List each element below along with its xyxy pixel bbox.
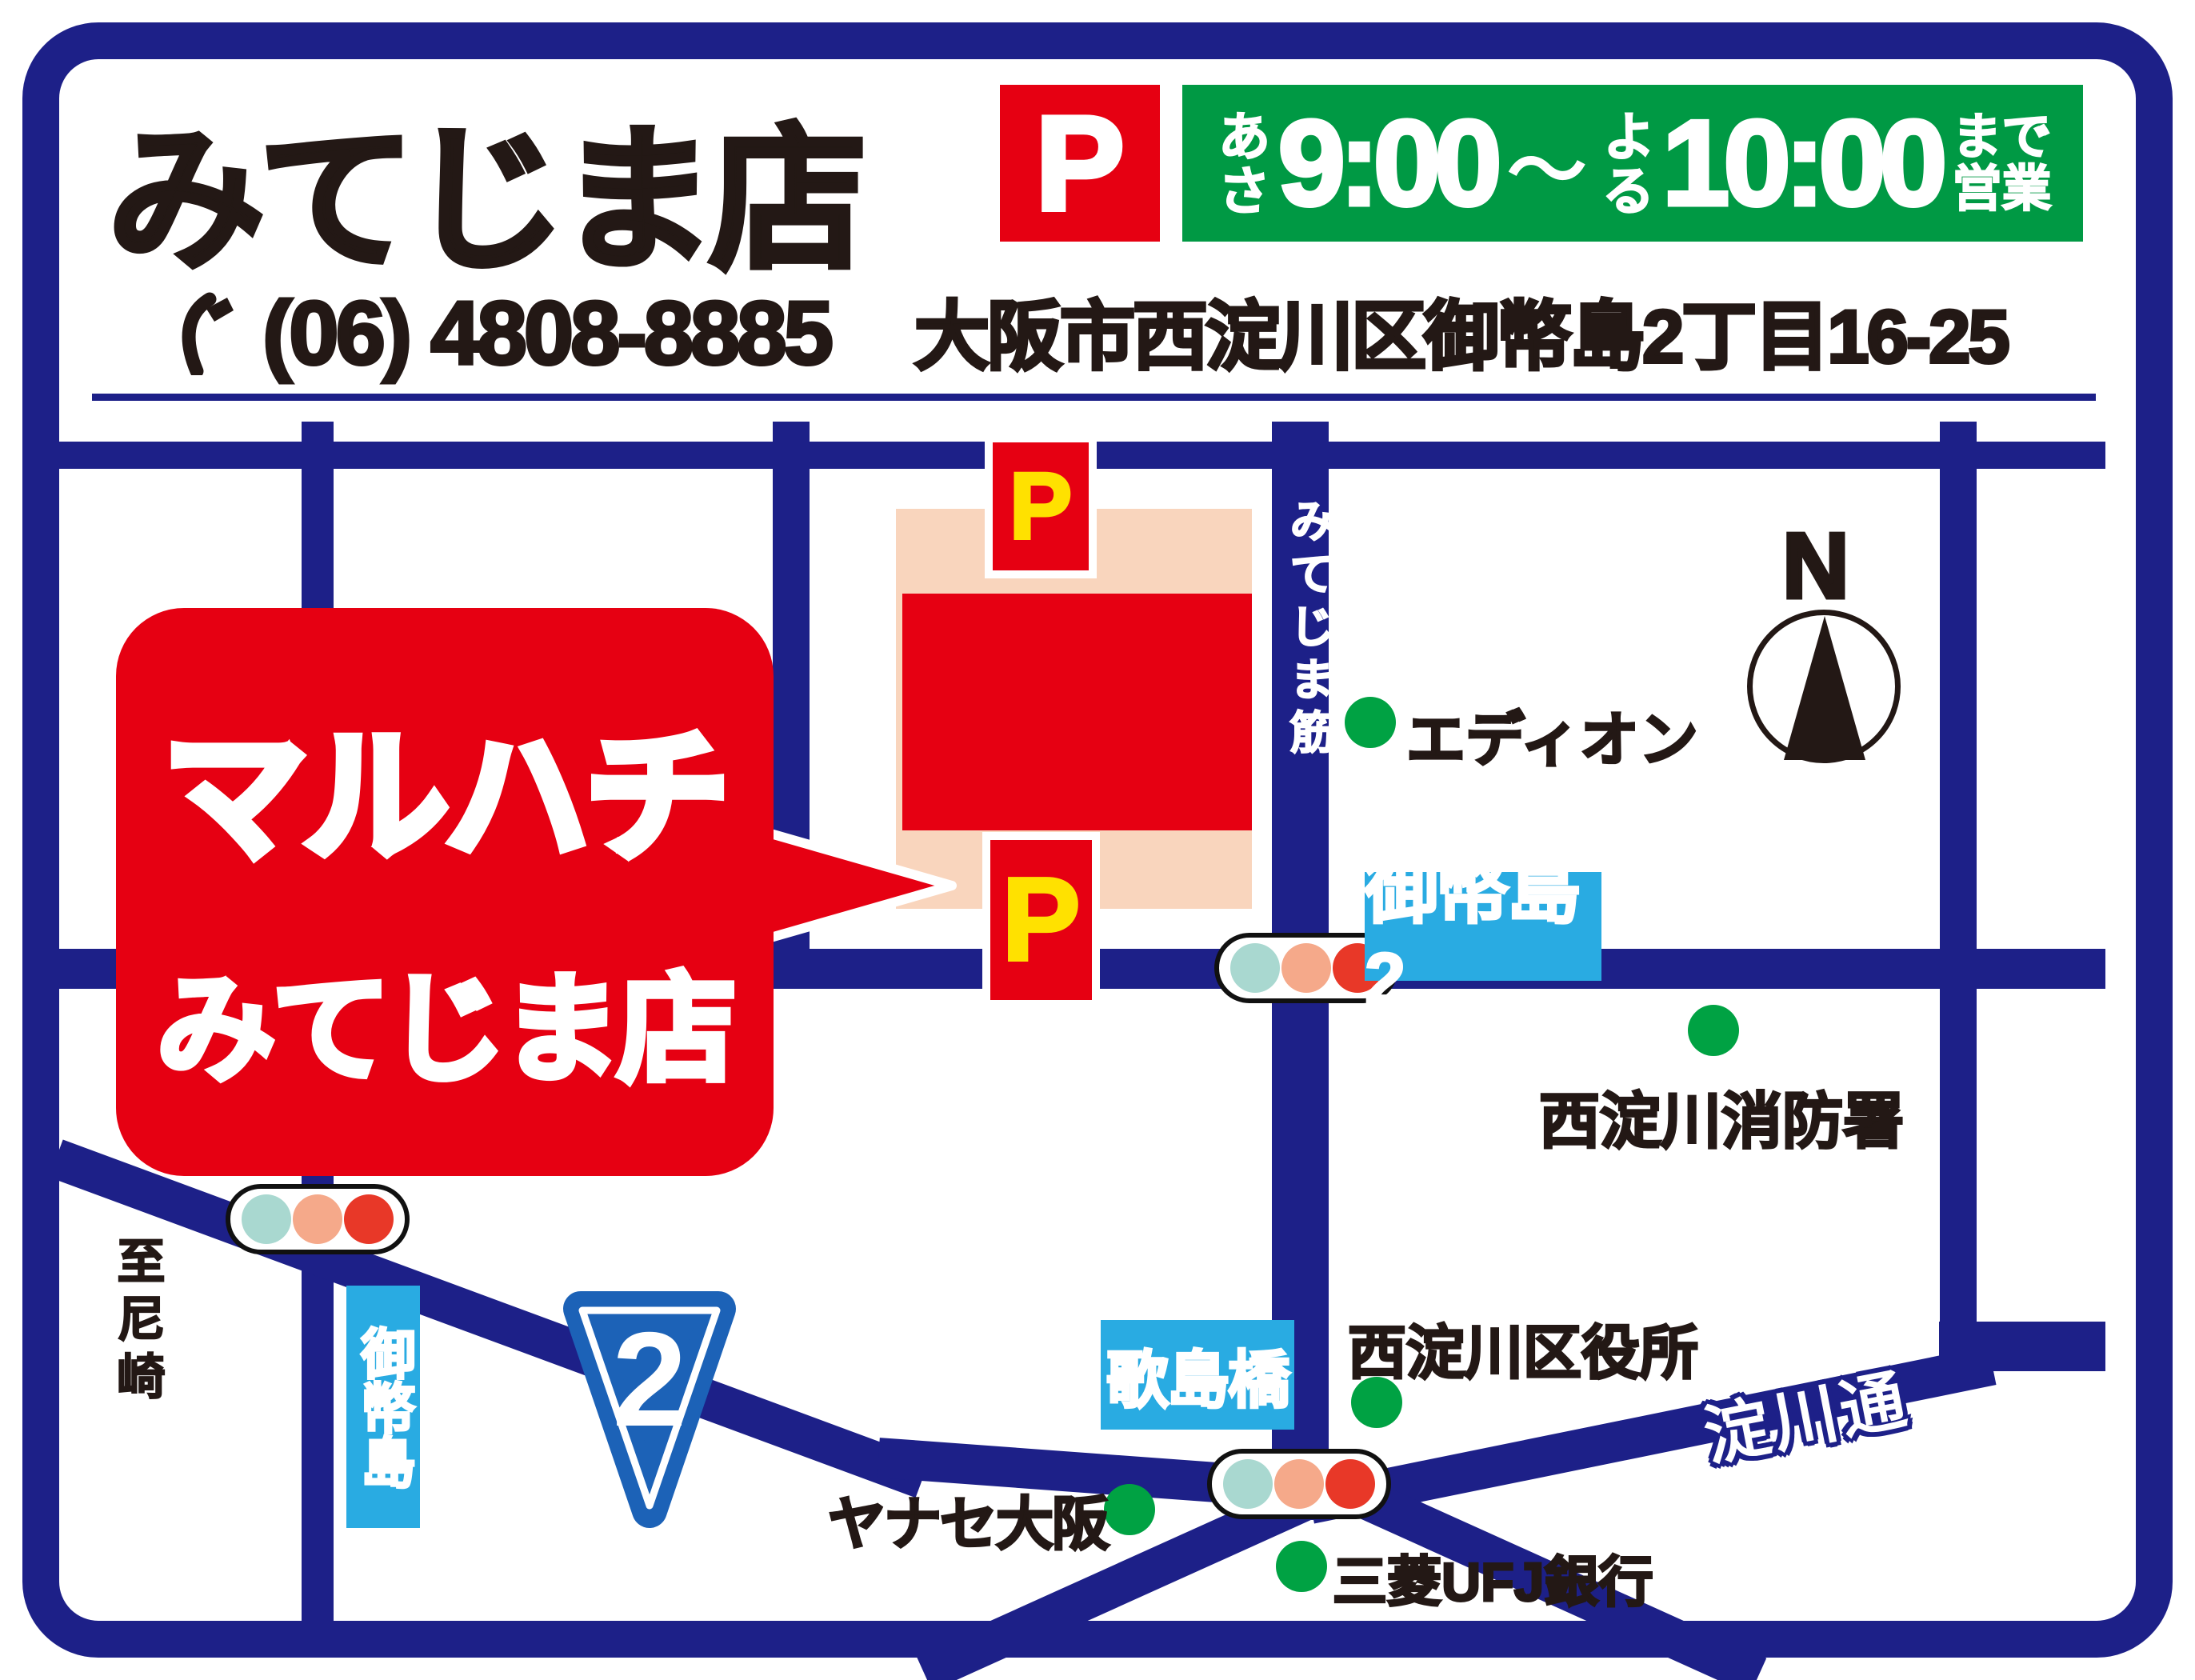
traffic-light-west <box>226 1184 410 1254</box>
edion-dot <box>1345 697 1396 748</box>
compass-north-label: N <box>1782 512 1849 619</box>
hours-close-time: 10:00 <box>1662 94 1941 234</box>
sign-mitejima2: 御幣島2 <box>1365 872 1601 981</box>
phone-row: (06) 4808-8885 <box>178 282 830 385</box>
hours-suffix: まで営業 <box>1953 111 2052 215</box>
fire-station-dot <box>1688 1005 1739 1056</box>
route2-shield: 2 <box>562 1288 738 1528</box>
phone-receiver-icon <box>178 291 250 375</box>
road-yodogawa-east-segment <box>1939 1322 2105 1371</box>
road-route2-upper <box>49 1140 930 1498</box>
landmark-yanase: ヤナセ大阪 <box>828 1477 1108 1561</box>
landmark-ward-office: 西淀川区役所 <box>1348 1306 1698 1390</box>
store-callout-bubble: マルハチ みてじま店 <box>116 608 774 1176</box>
landmark-fire-station: 西淀川消防署 <box>1539 1072 1904 1160</box>
parking-sign-south-letter: P <box>990 840 1092 1000</box>
store-access-flyer: みてじま店 (06) 4808-8885 P あさ 9:00 ～ よる 10:0… <box>0 0 2195 1680</box>
hours-tilde: ～ <box>1507 106 1587 222</box>
branch-name: みてじま店 <box>157 933 733 1105</box>
landmark-mufg-bank: 三菱UFJ銀行 <box>1333 1538 1653 1617</box>
yanase-dot <box>1104 1484 1155 1535</box>
brand-name: マルハチ <box>163 680 726 889</box>
parking-sign-south: P <box>982 832 1100 1008</box>
hours-open-time: 9:00 <box>1278 94 1496 234</box>
mufg-bank-dot <box>1276 1541 1327 1592</box>
road-label-yodogawa-dori: 淀川通 <box>1695 1346 1916 1478</box>
page-title: みてじま店 <box>108 74 860 300</box>
hours-banner: あさ 9:00 ～ よる 10:00 まで営業 <box>1182 85 2083 242</box>
compass-needle-icon <box>1781 614 1869 763</box>
landmark-edion: エディオン <box>1406 692 1698 778</box>
hours-morning-label: あさ <box>1214 109 1267 218</box>
direction-to-amagasaki: 至尼崎 <box>102 1236 172 1409</box>
traffic-light-utajimabashi <box>1207 1449 1391 1519</box>
sign-mitejima-text: 御幣島 <box>356 1326 410 1489</box>
route2-number: 2 <box>612 1304 686 1454</box>
store-building <box>902 594 1252 830</box>
callout-tail <box>752 820 960 956</box>
phone-number: (06) 4808-8885 <box>262 282 830 385</box>
header-divider <box>92 394 2096 401</box>
parking-sign-north-letter: P <box>993 442 1089 570</box>
hours-evening-label: よる <box>1598 109 1651 218</box>
sign-utajimabashi: 歌島橋 <box>1101 1320 1294 1430</box>
road-label-mitejima-suji: みてじま筋 <box>1277 498 1341 762</box>
sign-mitejima-vertical: 御幣島 <box>346 1286 420 1528</box>
store-address: 大阪市西淀川区御幣島2丁目16-25 <box>914 276 2008 385</box>
parking-badge: P <box>1000 85 1160 242</box>
parking-sign-north: P <box>985 434 1097 578</box>
road-vertical-right <box>1940 422 1977 1374</box>
